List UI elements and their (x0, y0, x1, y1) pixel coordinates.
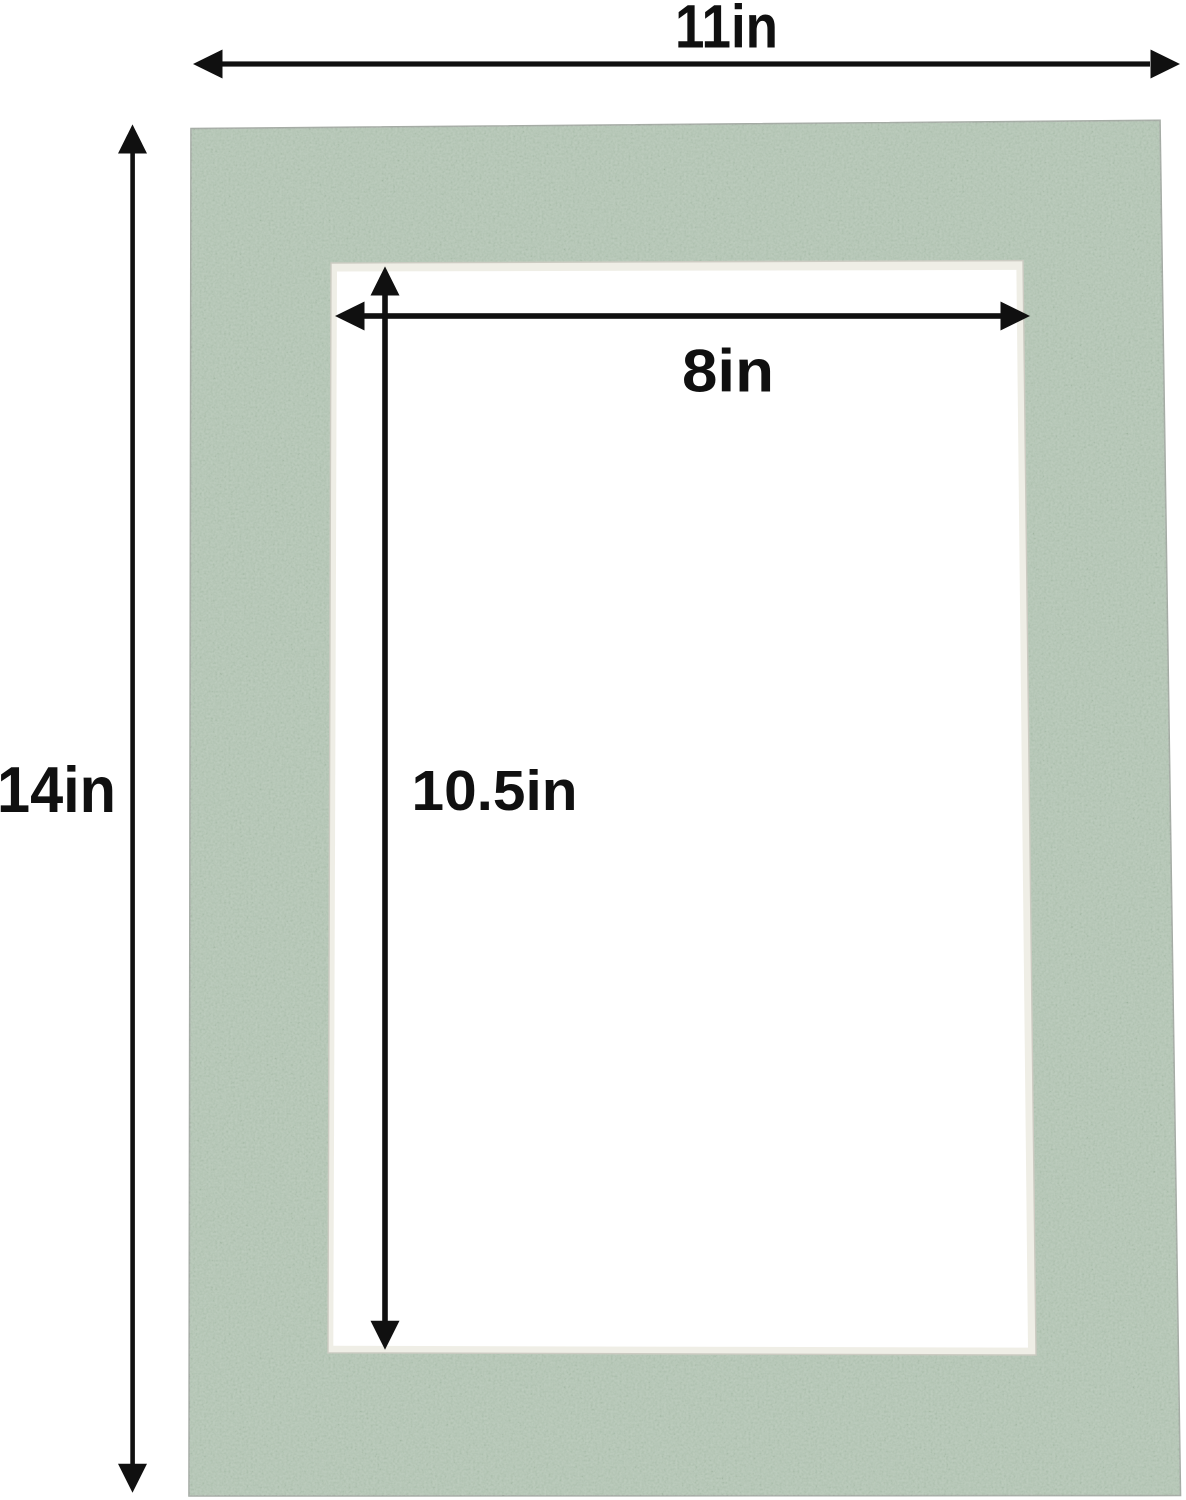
svg-text:11in: 11in (675, 0, 778, 62)
svg-text:8in: 8in (682, 338, 774, 405)
svg-text:14in: 14in (0, 753, 116, 826)
svg-text:10.5in: 10.5in (412, 759, 578, 823)
